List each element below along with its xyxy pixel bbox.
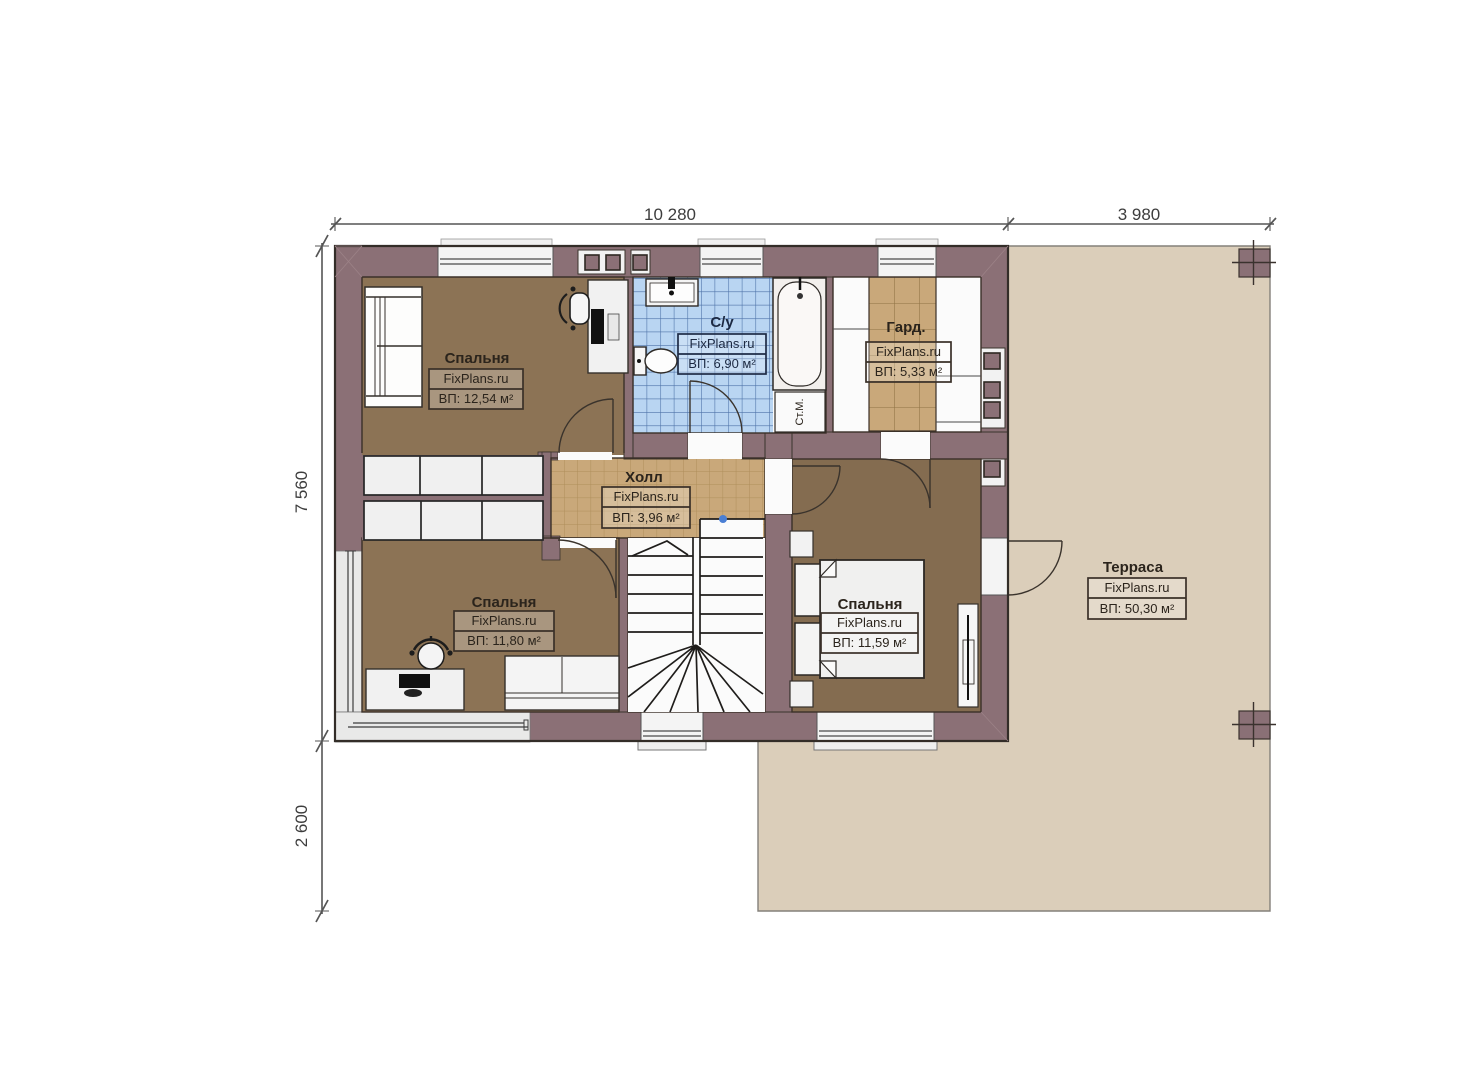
svg-text:ВП: 11,80 м²: ВП: 11,80 м² [467,633,541,648]
svg-text:FixPlans.ru: FixPlans.ru [1104,580,1169,595]
svg-text:Гард.: Гард. [886,319,925,336]
svg-text:7 560: 7 560 [292,471,311,514]
svg-text:ВП: 11,59 м²: ВП: 11,59 м² [833,635,907,650]
svg-text:FixPlans.ru: FixPlans.ru [876,344,941,359]
svg-text:FixPlans.ru: FixPlans.ru [837,615,902,630]
svg-text:ВП: 5,33 м²: ВП: 5,33 м² [875,364,943,379]
svg-text:ВП: 6,90 м²: ВП: 6,90 м² [688,356,756,371]
svg-text:2 600: 2 600 [292,805,311,848]
svg-text:Холл: Холл [625,469,663,486]
svg-text:FixPlans.ru: FixPlans.ru [471,613,536,628]
svg-text:Ст.М.: Ст.М. [794,398,806,425]
svg-text:FixPlans.ru: FixPlans.ru [443,371,508,386]
svg-text:10 280: 10 280 [644,205,696,224]
svg-text:FixPlans.ru: FixPlans.ru [689,336,754,351]
svg-text:Спальня: Спальня [838,596,903,613]
svg-text:ВП: 12,54 м²: ВП: 12,54 м² [439,391,514,406]
svg-text:ВП: 3,96 м²: ВП: 3,96 м² [612,510,680,525]
svg-text:С/у: С/у [710,314,734,331]
svg-text:FixPlans.ru: FixPlans.ru [613,489,678,504]
svg-text:Терраса: Терраса [1103,559,1164,576]
svg-text:ВП: 50,30 м²: ВП: 50,30 м² [1100,601,1175,616]
svg-text:3 980: 3 980 [1118,205,1161,224]
svg-text:Спальня: Спальня [472,594,537,611]
svg-text:Спальня: Спальня [445,350,510,367]
